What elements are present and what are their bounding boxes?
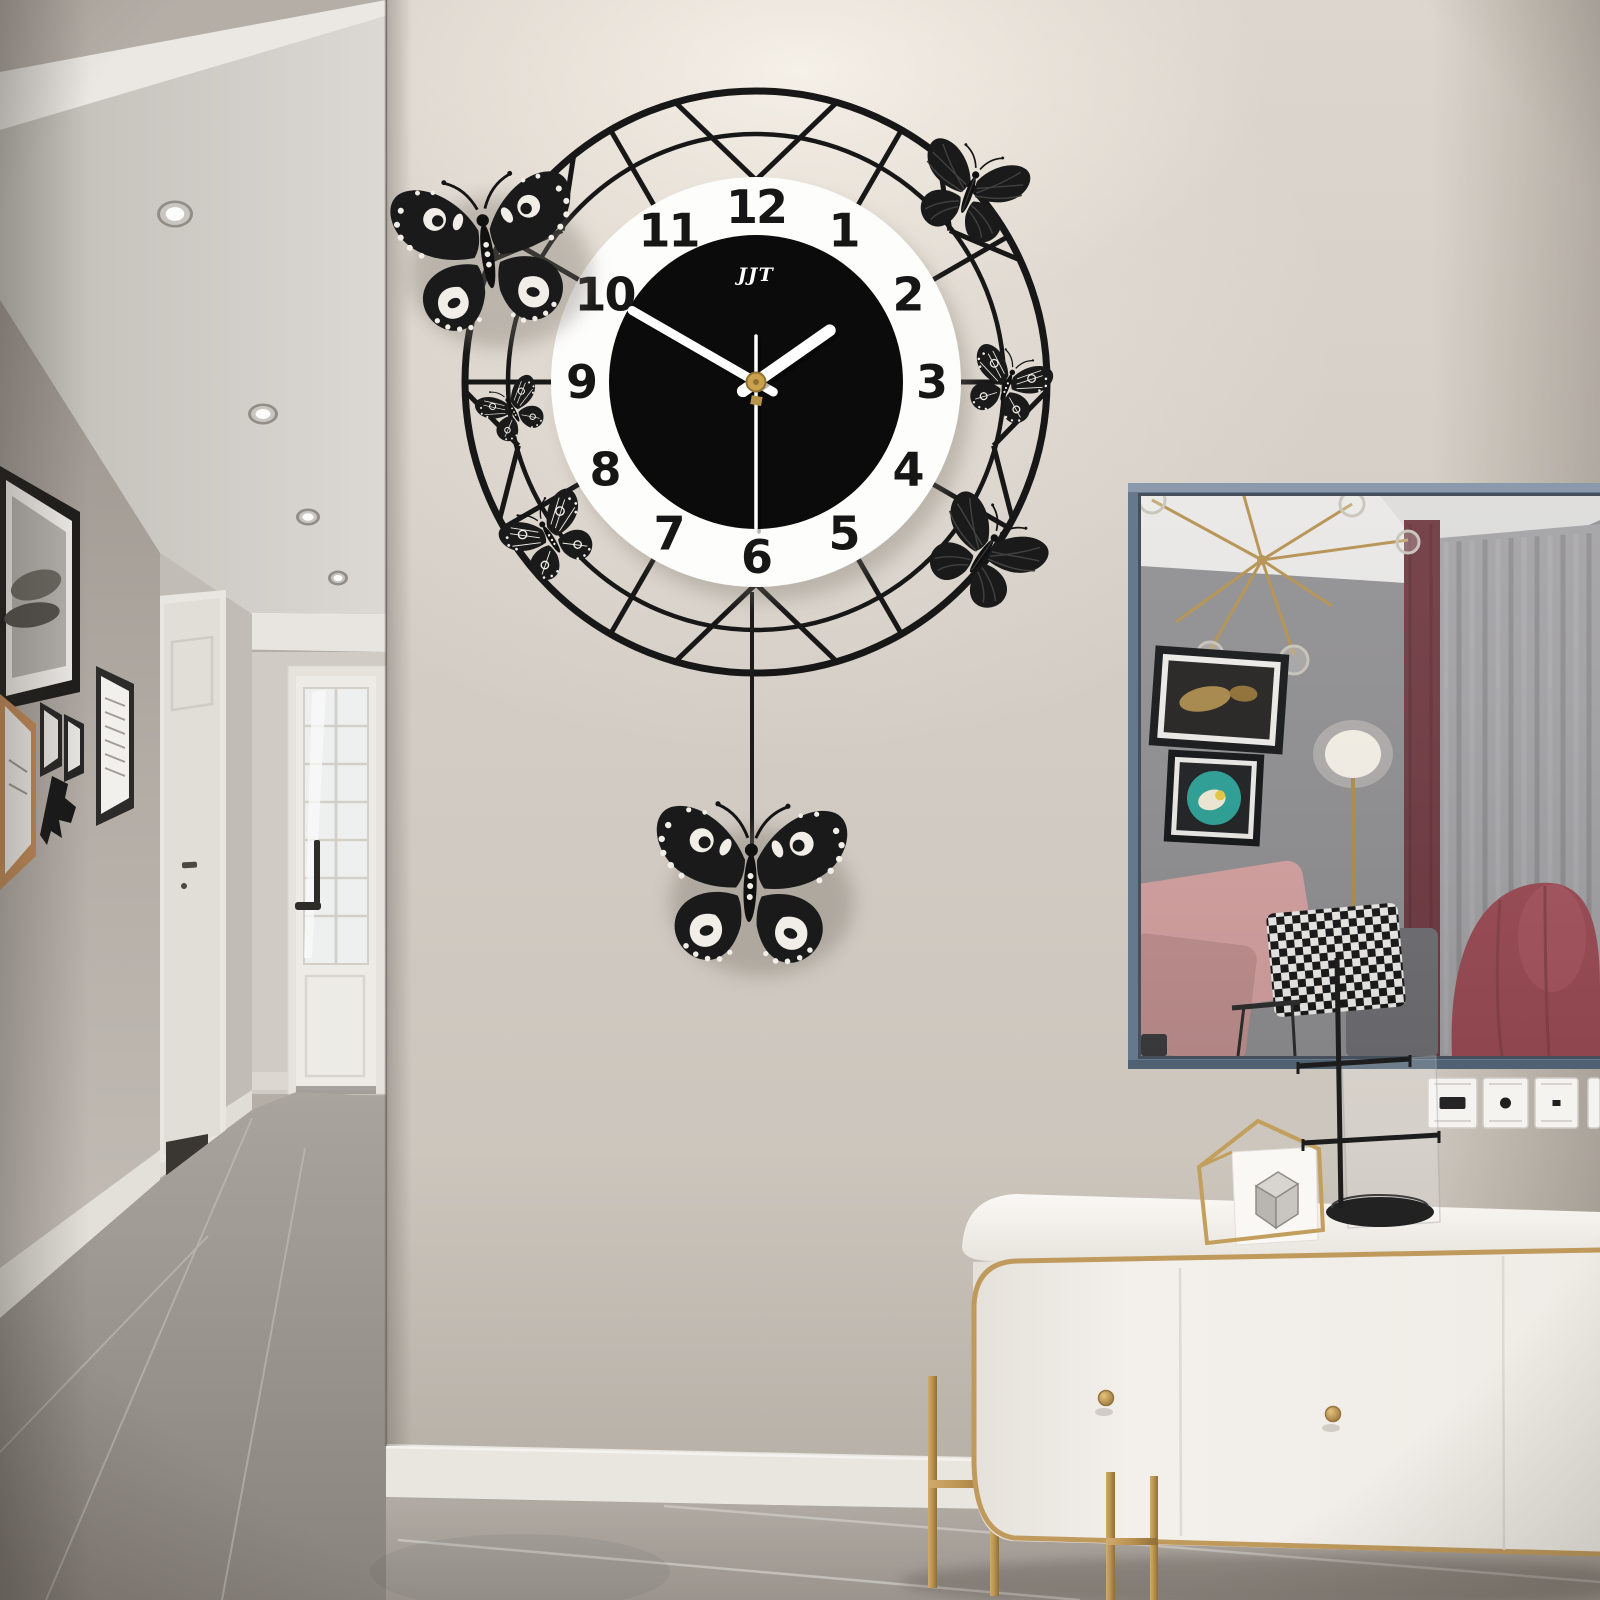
switch-dot-small [1553,1100,1561,1106]
clock-numeral-2: 2 [893,268,923,322]
plate-label-line [1541,1120,1572,1122]
left-vignette [0,0,90,1600]
downlight-lamp [302,513,313,520]
clock-numeral-1: 1 [828,203,858,257]
switch-row [1428,1078,1600,1128]
downlight-lamp [166,207,185,221]
plate-label-line [1489,1120,1522,1122]
far-door-handle-plate [314,840,320,904]
near-door-keyhole [181,883,187,889]
clock-numeral-6: 6 [741,530,771,584]
plate-label-line [1434,1083,1471,1085]
clock-brand-logo: JJT [735,264,775,286]
plate-label-line [1489,1083,1522,1085]
socket-holes [1440,1097,1466,1109]
far-door-handle [295,902,321,910]
bench-leg-crossbar [1106,1538,1158,1545]
bench-door-seam [1180,1268,1181,1536]
clock-numeral-12: 12 [726,180,786,234]
movement-nut [750,395,762,406]
switch-plate-edge [1588,1078,1600,1128]
bench-front-panel [973,1248,1600,1556]
clock-numeral-11: 11 [638,203,698,257]
clock-numeral-4: 4 [893,443,923,497]
clock-center-dot [753,379,759,385]
bench-leg [1106,1472,1115,1600]
near-door-handle [182,862,197,869]
downlight-lamp [256,409,271,419]
mirror-reflection [1119,482,1600,1064]
hallway-far-door [288,666,386,1094]
room-photo: 121234567891011 JJT [0,0,1600,1600]
clock-numeral-3: 3 [916,355,946,409]
downlight-lamp [334,575,343,581]
clock-numeral-9: 9 [566,355,596,409]
switch-plate-dot [1483,1078,1528,1128]
clock-numeral-5: 5 [828,507,858,561]
mirror-glass-tint [1141,496,1600,1056]
hallway-near-door [158,590,226,1182]
knob-shadow [1322,1424,1340,1432]
clock-numeral-7: 7 [653,507,683,561]
switch-plate-dot-small [1535,1078,1578,1128]
gold-knob [1326,1407,1341,1422]
console-bench [900,1194,1600,1600]
switch-plate [1588,1078,1600,1128]
wall-mirror [1119,482,1600,1069]
switch-dot [1500,1098,1511,1109]
bench-door-seam [1503,1256,1504,1550]
plate-label-line [1434,1120,1471,1122]
mirror-frame-top-highlight [1128,483,1600,492]
clock-numeral-8: 8 [589,443,619,497]
gold-knob [1099,1391,1114,1406]
hallway [0,0,387,1600]
plate-label-line [1541,1083,1572,1085]
scene-svg: 121234567891011 JJT [0,0,1600,1600]
knob-shadow [1095,1408,1113,1416]
